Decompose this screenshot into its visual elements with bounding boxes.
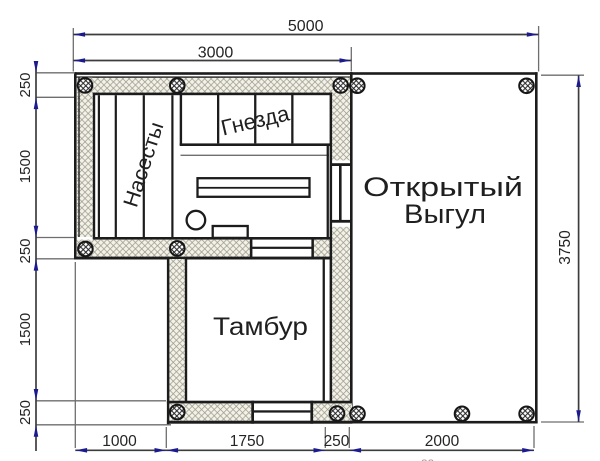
svg-text:250: 250 [324,433,350,450]
svg-text:250: 250 [17,238,34,263]
svg-text:aa: aa [421,455,435,461]
svg-text:250: 250 [17,400,34,425]
svg-text:1500: 1500 [17,150,34,183]
svg-text:2000: 2000 [425,433,460,450]
svg-text:1000: 1000 [102,433,137,450]
svg-text:3000: 3000 [198,45,234,62]
svg-text:Выгул: Выгул [404,199,486,229]
svg-text:1500: 1500 [17,313,34,346]
svg-text:Открытый: Открытый [363,172,523,202]
svg-text:3750: 3750 [557,230,574,265]
svg-text:Тамбур: Тамбур [213,313,308,341]
svg-text:5000: 5000 [288,18,324,35]
svg-text:250: 250 [17,72,34,97]
svg-text:1750: 1750 [230,433,265,450]
